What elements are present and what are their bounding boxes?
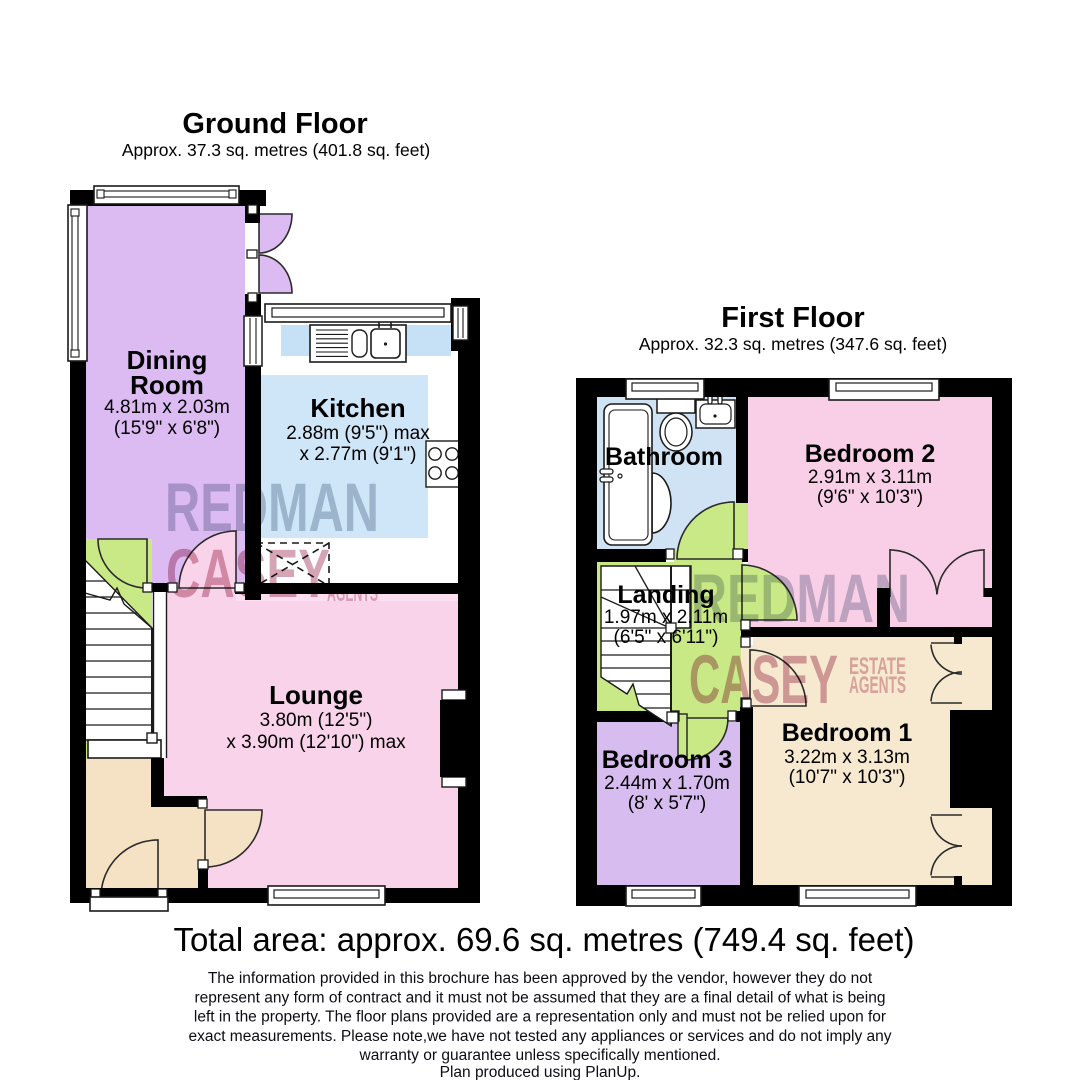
svg-text:First Floor: First Floor — [721, 302, 864, 334]
svg-text:The information provided in th: The information provided in this brochur… — [208, 970, 873, 987]
svg-text:exact measurements. Please not: exact measurements. Please note,we have … — [188, 1028, 891, 1045]
svg-text:(15'9" x 6'8"): (15'9" x 6'8") — [114, 418, 220, 439]
svg-text:CASEY: CASEY — [689, 641, 838, 718]
svg-text:Ground Floor: Ground Floor — [182, 108, 367, 140]
svg-text:(9'6" x 10'3"): (9'6" x 10'3") — [817, 487, 923, 508]
svg-text:Bedroom 1: Bedroom 1 — [782, 719, 913, 747]
svg-text:warranty or guarantee unless s: warranty or guarantee unless specificall… — [359, 1047, 721, 1064]
svg-text:2.44m x 1.70m: 2.44m x 1.70m — [604, 773, 730, 794]
svg-text:3.80m (12'5"): 3.80m (12'5") — [260, 710, 373, 731]
svg-text:(8' x 5'7"): (8' x 5'7") — [628, 793, 706, 814]
svg-text:Total area: approx. 69.6 sq. m: Total area: approx. 69.6 sq. metres (749… — [173, 921, 914, 958]
svg-text:2.91m x 3.11m: 2.91m x 3.11m — [808, 467, 932, 488]
svg-text:Bathroom: Bathroom — [605, 443, 723, 471]
svg-text:represent any form of contract: represent any form of contract and it mu… — [195, 989, 886, 1006]
svg-text:2.88m (9'5") max: 2.88m (9'5") max — [286, 423, 430, 444]
svg-text:AGENTS: AGENTS — [849, 672, 906, 699]
svg-text:Approx. 32.3 sq. metres (347.6: Approx. 32.3 sq. metres (347.6 sq. feet) — [639, 334, 947, 354]
svg-text:4.81m x 2.03m: 4.81m x 2.03m — [104, 397, 230, 418]
svg-text:Room: Room — [130, 370, 204, 400]
svg-text:(10'7" x 10'3"): (10'7" x 10'3") — [789, 767, 906, 788]
svg-text:Kitchen: Kitchen — [310, 393, 405, 423]
svg-text:Landing: Landing — [617, 581, 714, 609]
svg-text:Bedroom 3: Bedroom 3 — [602, 746, 733, 774]
svg-text:3.22m x 3.13m: 3.22m x 3.13m — [784, 747, 910, 768]
svg-text:Lounge: Lounge — [269, 680, 363, 710]
svg-text:Plan produced using PlanUp.: Plan produced using PlanUp. — [440, 1064, 641, 1080]
svg-text:x 2.77m (9'1"): x 2.77m (9'1") — [299, 444, 416, 465]
svg-text:x 3.90m (12'10") max: x 3.90m (12'10") max — [226, 732, 406, 753]
svg-text:(6'5" x 6'11"): (6'5" x 6'11") — [614, 627, 719, 648]
svg-text:Approx. 37.3 sq. metres (401.8: Approx. 37.3 sq. metres (401.8 sq. feet) — [122, 140, 430, 160]
svg-text:left in the property. The floo: left in the property. The floor plans pr… — [194, 1009, 886, 1026]
svg-text:Bedroom 2: Bedroom 2 — [805, 440, 936, 468]
svg-text:1.97m x 2.11m: 1.97m x 2.11m — [604, 607, 728, 628]
